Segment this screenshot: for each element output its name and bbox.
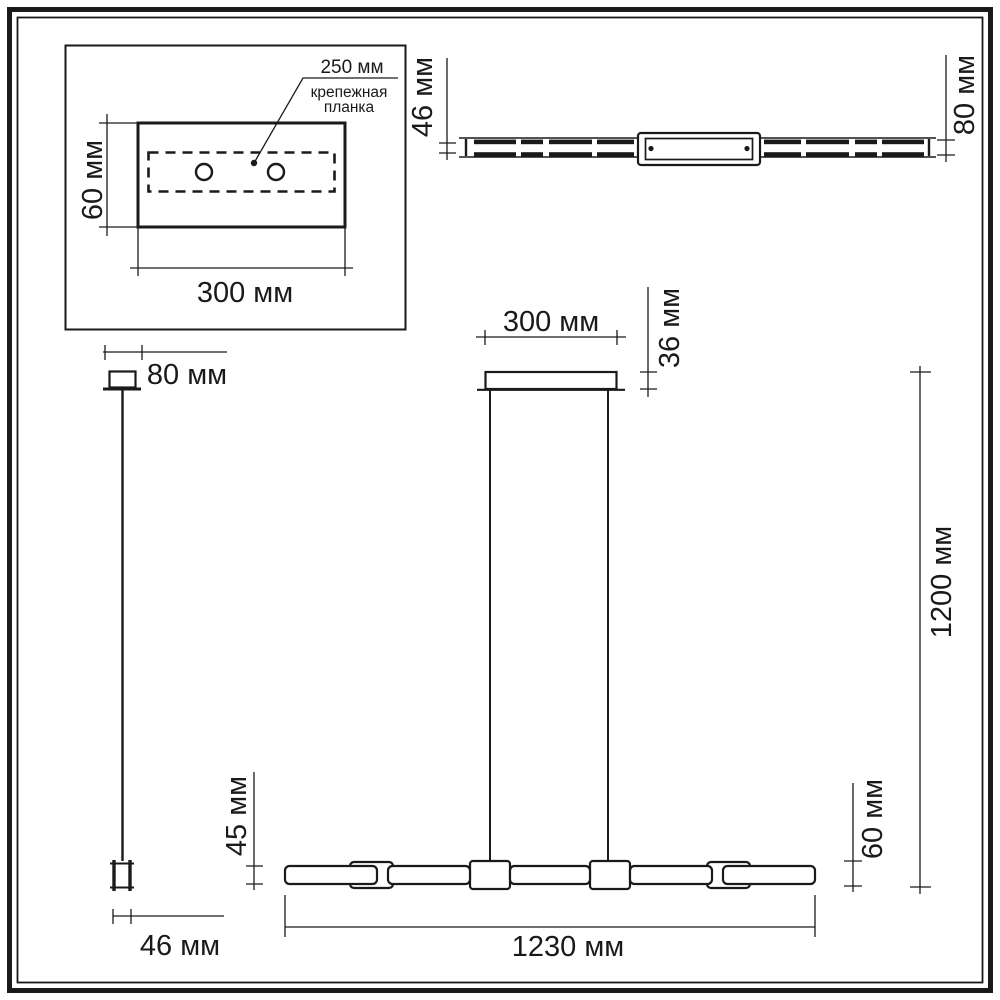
mounting-plate-inset: 250 мм крепежная планка 60 мм 300 мм [66,46,406,330]
suspension-height-label: 1200 мм [926,526,958,638]
mounting-bracket-dashed-outline [149,153,335,192]
fixture-top-view: 46 мм 80 мм [407,55,981,165]
hole-spacing-label: 250 мм [320,57,383,78]
canopy-width-label: 300 мм [503,306,599,338]
diffuser-tube [285,866,377,884]
plate-height-label: 60 мм [77,140,109,220]
wire-mount-block [470,861,510,889]
pendant-light-dimension-drawing: 250 мм крепежная планка 60 мм 300 мм [0,0,1000,1000]
screw-hole-right [268,164,284,180]
tube-height-label: 45 мм [221,776,253,856]
ceiling-plate-outline [138,123,345,227]
bar-end-profile [110,860,134,891]
bracket-label-line2: планка [324,99,375,116]
inner-frame-border [18,18,983,983]
bar-depth-label: 46 мм [140,930,220,962]
wire-mount-block [590,861,630,889]
canopy-front-view [486,372,617,389]
fixture-side-view: 80 мм 46 мм [103,345,227,962]
canopy-side-view [110,372,136,388]
total-length-label: 1230 мм [512,931,624,963]
canopy-screw-left [648,146,653,151]
diffuser-tube [388,866,470,884]
plate-width-label: 300 мм [197,277,293,309]
bar-thickness-label: 46 мм [407,57,439,137]
diffuser-tube [630,866,712,884]
diffuser-tube [510,866,590,884]
bar-width-label: 80 мм [949,55,981,135]
canopy-height-label: 36 мм [654,288,686,368]
canopy-screw-right [744,146,749,151]
connector-height-label: 60 мм [857,779,889,859]
diffuser-tube [723,866,815,884]
technical-drawing-page: 250 мм крепежная планка 60 мм 300 мм [0,0,1000,1000]
canopy-width-label: 80 мм [147,359,227,391]
fixture-front-view: 300 мм 36 мм 45 мм 60 мм [221,287,958,963]
screw-hole-left [196,164,212,180]
